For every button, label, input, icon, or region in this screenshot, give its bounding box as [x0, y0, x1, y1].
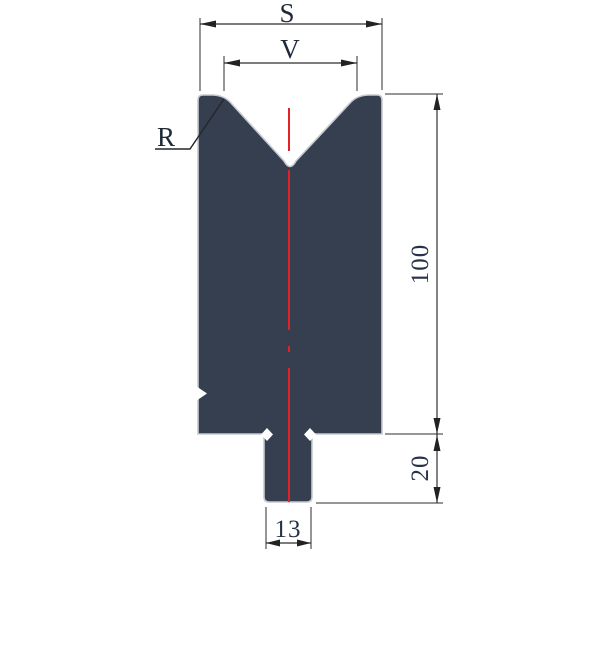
s-arrow-right	[366, 21, 382, 28]
tang-width-label: 13	[275, 516, 302, 543]
dimension-v: V	[224, 34, 357, 91]
v-arrow-right	[341, 60, 357, 67]
tang-height-arrow-top	[434, 435, 441, 451]
die-diagram: S V R 100	[0, 0, 600, 650]
dimension-tang-height: 20	[316, 434, 443, 503]
s-label: S	[279, 0, 294, 28]
v-arrow-left	[224, 60, 240, 67]
tang-height-arrow-bottom	[434, 487, 441, 503]
dimension-tang-width: 13	[266, 507, 311, 549]
tang-height-label: 20	[407, 455, 434, 482]
height-arrow-top	[434, 94, 441, 110]
v-label: V	[280, 34, 300, 64]
s-arrow-left	[200, 21, 216, 28]
r-label: R	[157, 122, 175, 152]
dimension-body-height: 100	[385, 94, 443, 434]
height-label: 100	[407, 244, 434, 285]
technical-drawing-page: S V R 100	[0, 0, 600, 650]
height-arrow-bottom	[434, 418, 441, 434]
